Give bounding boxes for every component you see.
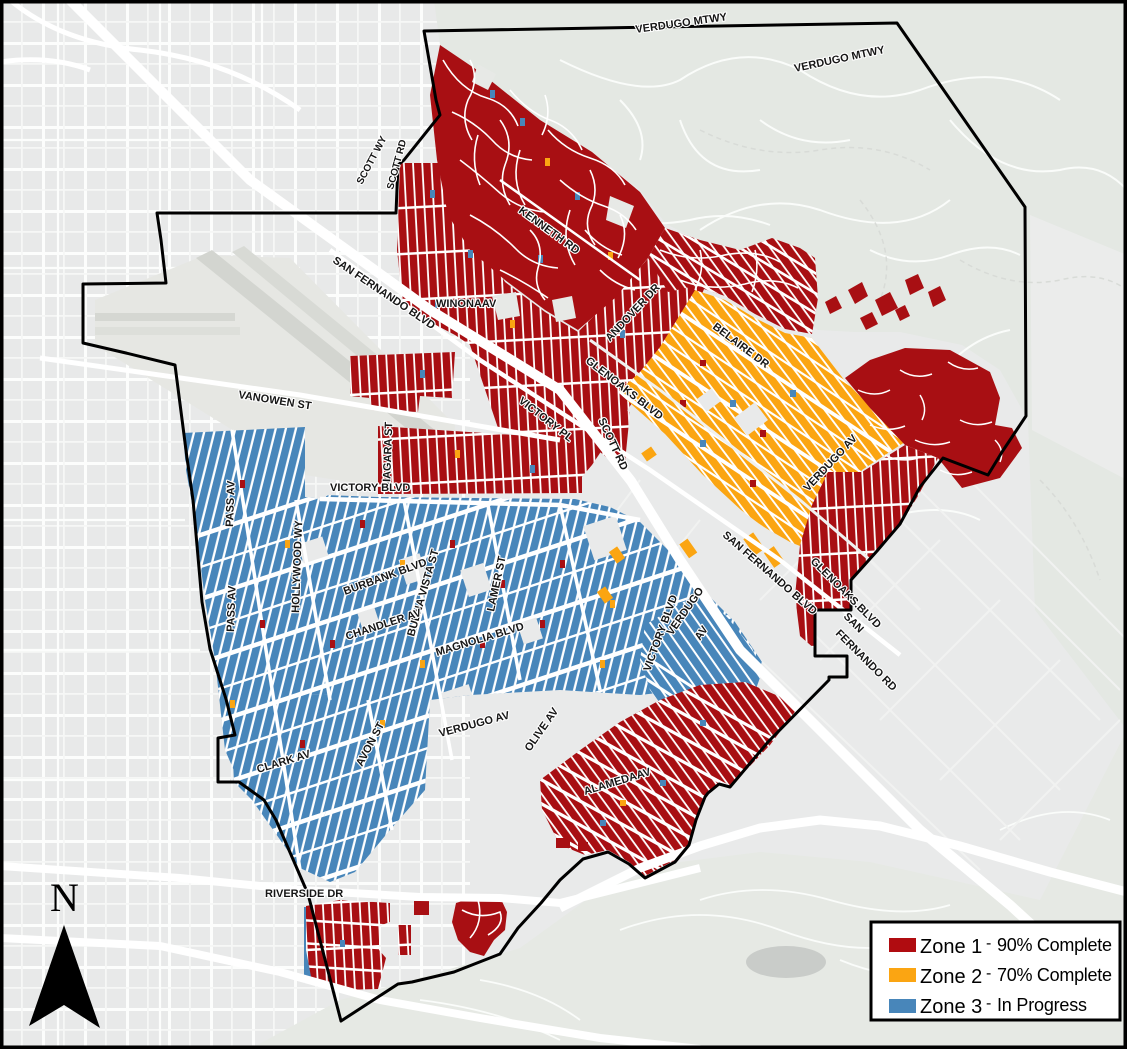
svg-text:PASS AV: PASS AV [225,585,239,632]
svg-text:WINONAAV: WINONAAV [436,298,497,310]
svg-text:PASS AV: PASS AV [224,480,238,527]
svg-text:Zone 1: Zone 1 [920,936,982,958]
svg-text:NIAGARA ST: NIAGARA ST [381,421,395,490]
svg-text:90% Complete: 90% Complete [997,935,1112,955]
svg-text:-: - [986,935,991,952]
svg-text:RIVERSIDE DR: RIVERSIDE DR [265,888,343,900]
svg-text:N: N [50,875,79,920]
svg-text:In Progress: In Progress [997,995,1087,1015]
svg-text:Zone 3: Zone 3 [920,996,982,1018]
svg-text:-: - [986,995,991,1012]
svg-text:Zone 2: Zone 2 [920,966,982,988]
svg-text:-: - [986,965,991,982]
svg-text:VICTORY BLVD: VICTORY BLVD [330,482,410,494]
svg-text:70% Complete: 70% Complete [997,965,1112,985]
